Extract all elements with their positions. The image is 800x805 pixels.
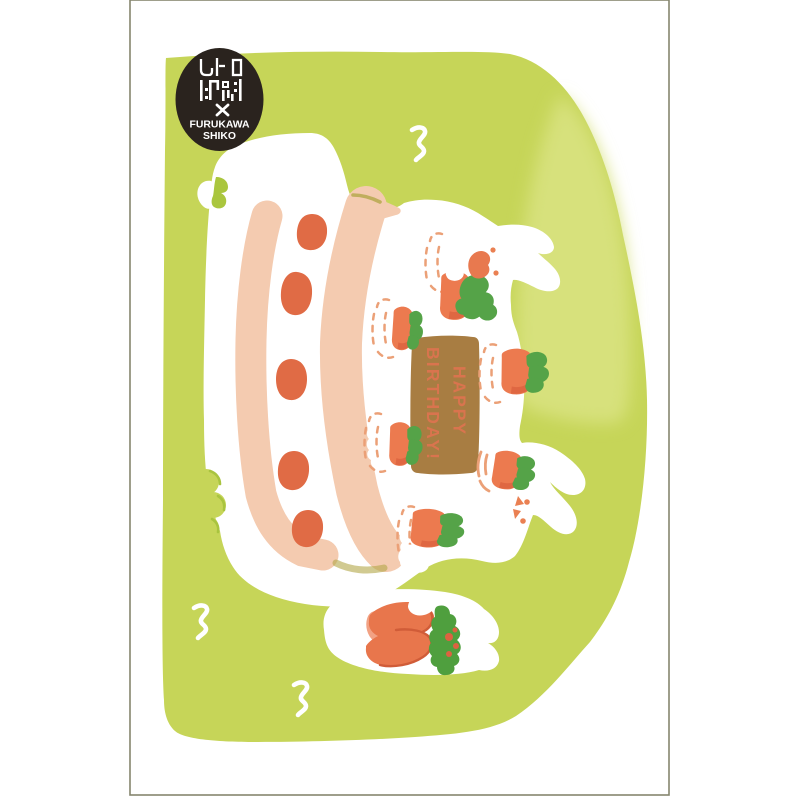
svg-text:HAPPY: HAPPY (450, 366, 470, 434)
svg-text:FURUKAWA: FURUKAWA (189, 120, 250, 131)
svg-text:BIRTHDAY!: BIRTHDAY! (423, 347, 443, 459)
svg-text:SHIKO: SHIKO (203, 131, 236, 142)
